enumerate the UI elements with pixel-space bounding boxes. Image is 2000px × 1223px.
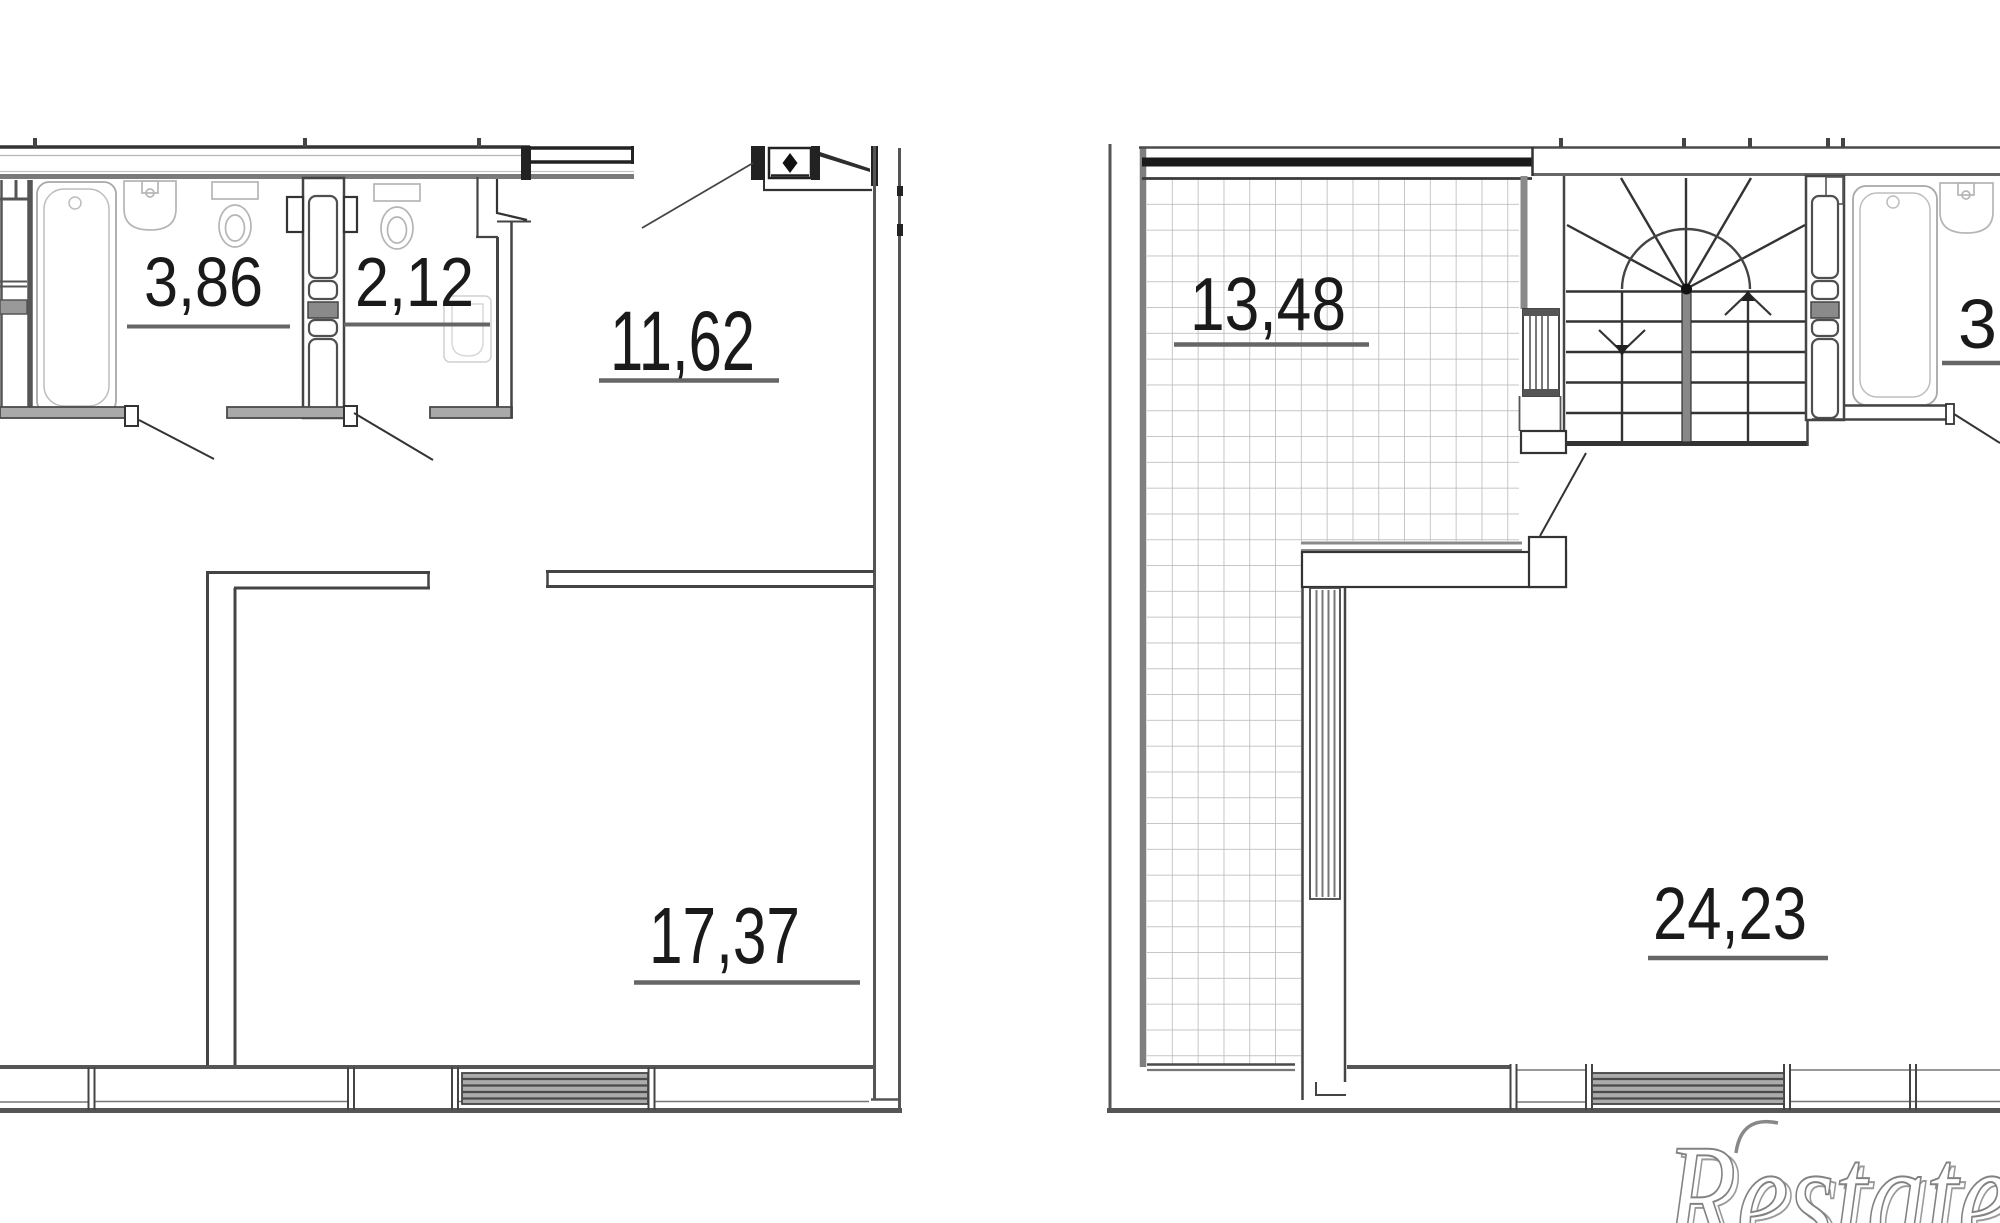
- svg-text:2,12: 2,12: [355, 243, 474, 321]
- svg-text:24,23: 24,23: [1653, 872, 1807, 955]
- svg-text:17,37: 17,37: [649, 891, 800, 980]
- svg-text:13,48: 13,48: [1190, 262, 1346, 346]
- svg-text:11,62: 11,62: [610, 294, 755, 388]
- svg-text:3,86: 3,86: [144, 243, 263, 321]
- svg-text:3,: 3,: [1958, 285, 2000, 363]
- svg-text:Restate: Restate: [1664, 1114, 2000, 1223]
